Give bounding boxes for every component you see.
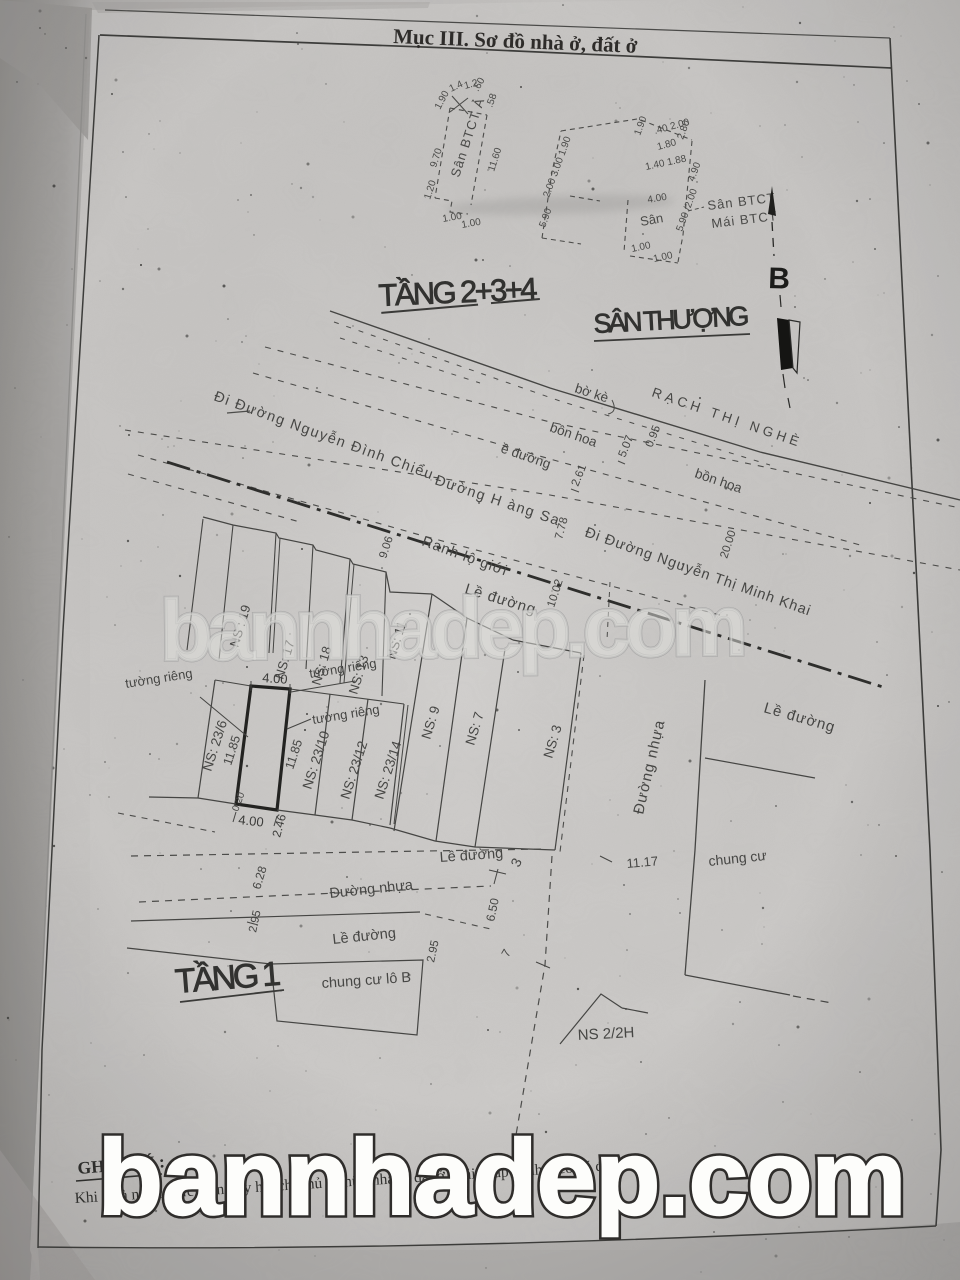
svg-text:bannhadep.com: bannhadep.com — [159, 578, 748, 679]
svg-text:NS 2/2H: NS 2/2H — [577, 1024, 635, 1044]
svg-text:B: B — [768, 262, 791, 296]
svg-text:11.17: 11.17 — [626, 853, 659, 871]
svg-text:bannhadep.com: bannhadep.com — [98, 1119, 906, 1237]
svg-text:4.00: 4.00 — [238, 812, 265, 830]
